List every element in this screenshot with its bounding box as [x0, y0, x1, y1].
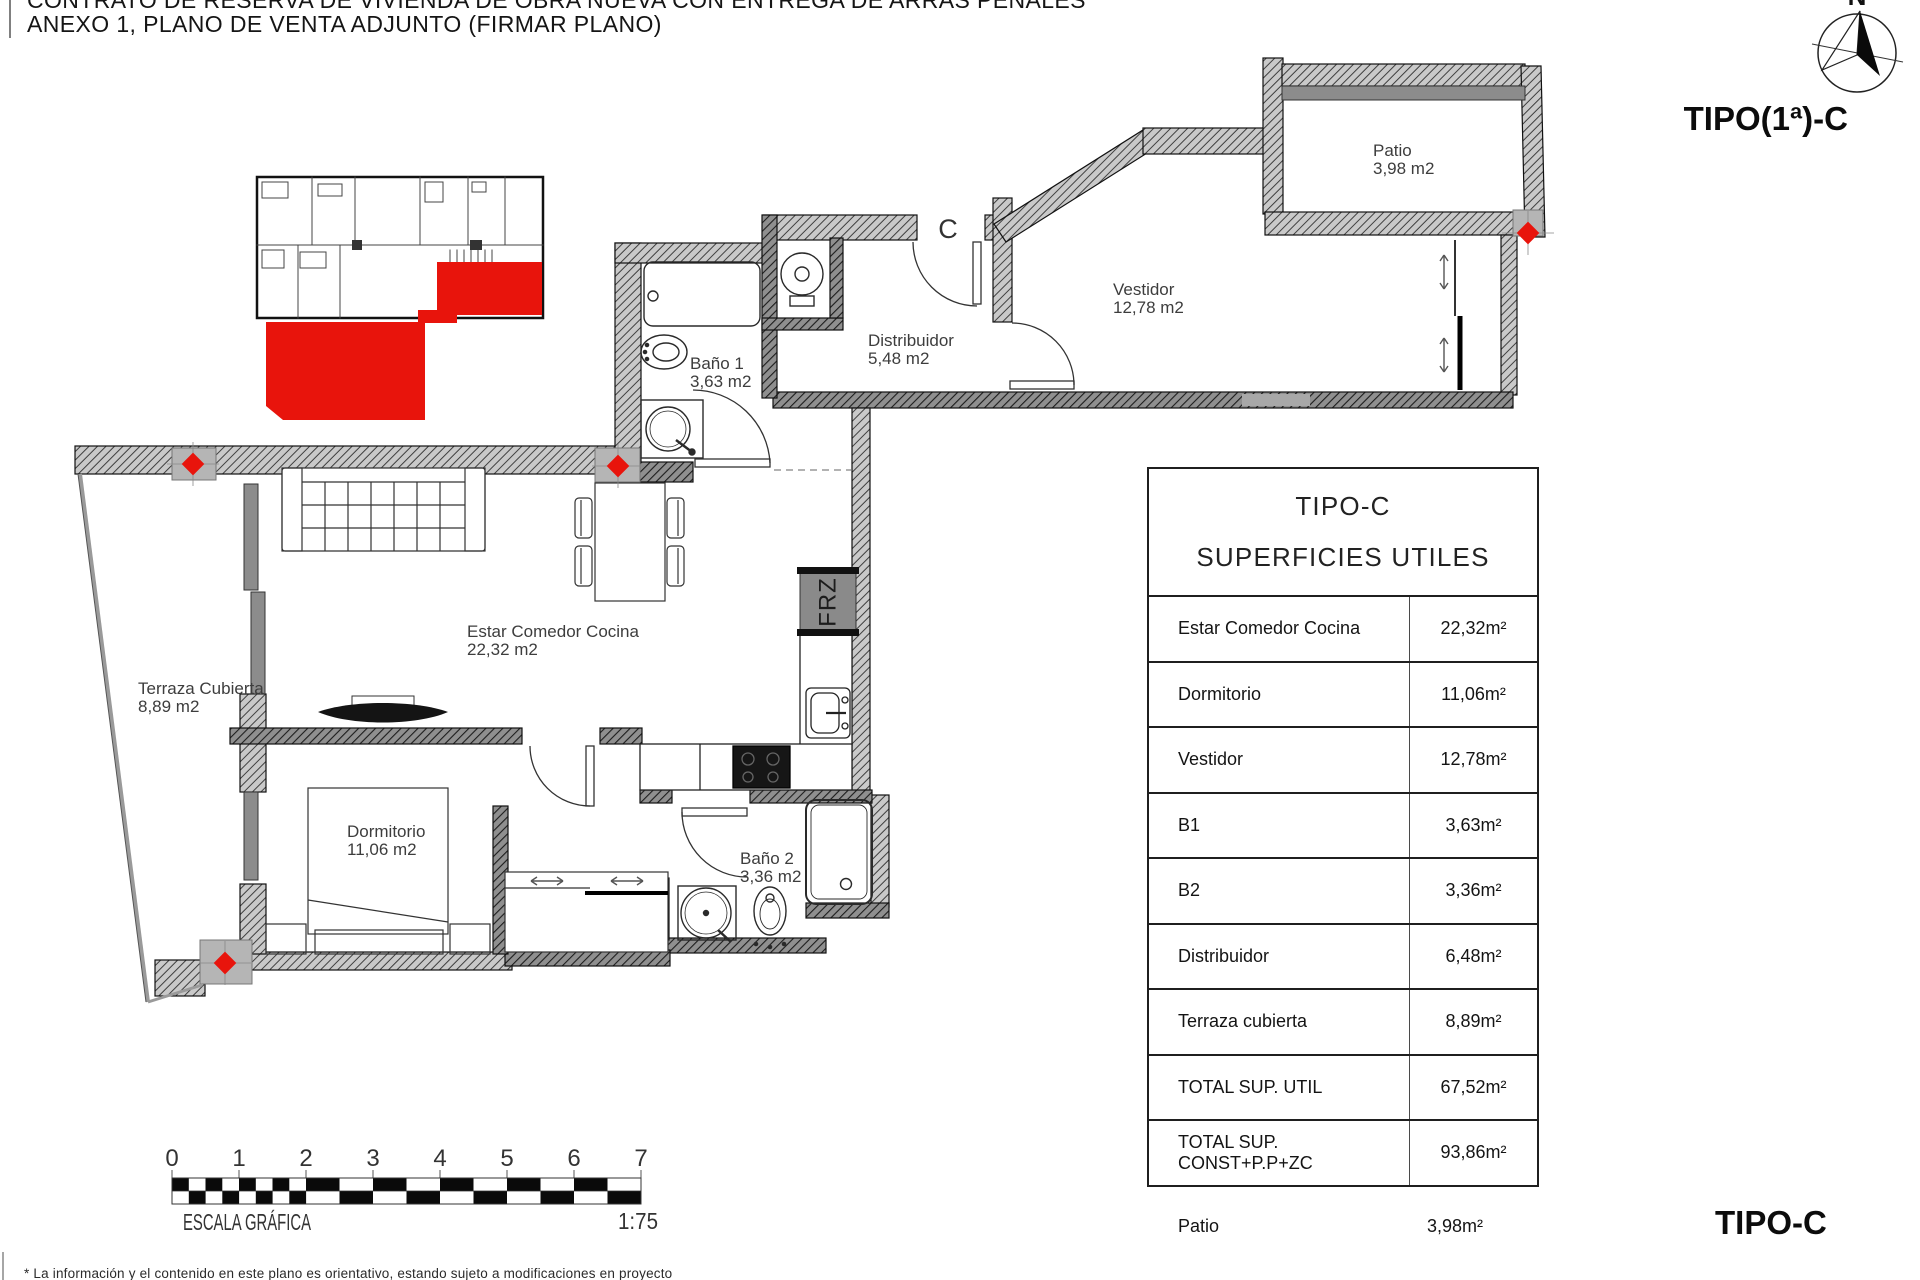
table-row: TOTAL SUP. CONST+P.P+ZC 93,86m² — [1149, 1119, 1537, 1185]
sofa — [282, 468, 485, 551]
room-area-bano2: 3,36 m2 — [740, 867, 801, 886]
compass-north-label: N — [1848, 0, 1867, 11]
compass-icon: N — [1812, 0, 1903, 92]
scale-ticks: 0 1 2 3 4 5 6 7 — [165, 1145, 647, 1172]
svg-text:3: 3 — [366, 1145, 379, 1172]
table-row: TOTAL SUP. UTIL 67,52m² — [1149, 1054, 1537, 1120]
svg-text:7: 7 — [634, 1145, 647, 1172]
table-row: Terraza cubierta 8,89m² — [1149, 988, 1537, 1054]
table-row: B2 3,36m² — [1149, 857, 1537, 923]
washing-machine — [781, 253, 823, 306]
scale-bar: 0 1 2 3 4 5 6 7 — [165, 1145, 658, 1235]
room-area-estar: 22,32 m2 — [467, 640, 538, 659]
type-label-top: TIPO(1ª)-C — [1648, 100, 1848, 138]
room-area-vestidor: 12,78 m2 — [1113, 298, 1184, 317]
terrace-railing — [78, 474, 202, 1002]
dining-table — [575, 483, 684, 601]
svg-text:2: 2 — [299, 1145, 312, 1172]
room-label-terraza: Terraza Cubierta — [138, 679, 264, 698]
table-title: TIPO-C — [1295, 491, 1390, 522]
entrance-door-label: C — [938, 214, 958, 244]
room-area-patio: 3,98 m2 — [1373, 159, 1434, 178]
table-row: Vestidor 12,78m² — [1149, 726, 1537, 792]
room-label-patio: Patio — [1373, 141, 1412, 160]
fridge-label: FRZ — [815, 577, 842, 627]
fridge: FRZ — [797, 567, 859, 636]
wardrobe-vestidor — [1440, 240, 1460, 390]
surfaces-table-header: TIPO-C SUPERFICIES UTILES — [1149, 469, 1537, 595]
scale-ratio: 1:75 — [618, 1208, 658, 1234]
room-label-dormitorio: Dormitorio — [347, 822, 425, 841]
table-row: Estar Comedor Cocina 22,32m² — [1149, 595, 1537, 661]
bed — [266, 788, 490, 954]
plan-sheet: FRZ — [0, 0, 1920, 1280]
table-row: Distribuidor 6,48m² — [1149, 923, 1537, 989]
room-label-vestidor: Vestidor — [1113, 280, 1175, 299]
room-area-terraza: 8,89 m2 — [138, 697, 199, 716]
wardrobe-hall — [505, 872, 668, 952]
floorplan-drawing: FRZ — [0, 0, 1920, 1280]
key-plan — [257, 177, 543, 420]
tv-console — [318, 696, 448, 723]
contract-title-line2: ANEXO 1, PLANO DE VENTA ADJUNTO (FIRMAR … — [27, 11, 662, 38]
kitchen-fixtures — [640, 631, 852, 790]
type-label-bottom: TIPO-C — [1715, 1204, 1827, 1242]
table-row: B1 3,63m² — [1149, 792, 1537, 858]
svg-text:4: 4 — [433, 1145, 446, 1172]
room-label-bano1: Baño 1 — [690, 354, 744, 373]
room-area-dormitorio: 11,06 m2 — [347, 840, 417, 859]
room-area-bano1: 3,63 m2 — [690, 372, 751, 391]
svg-text:6: 6 — [567, 1145, 580, 1172]
table-subtitle: SUPERFICIES UTILES — [1196, 542, 1489, 573]
room-label-distribuidor: Distribuidor — [868, 331, 954, 350]
svg-text:5: 5 — [500, 1145, 513, 1172]
disclaimer-footnote: * La información y el contenido en este … — [24, 1266, 672, 1280]
table-footer-row-patio: Patio 3,98m² — [1147, 1216, 1535, 1237]
room-area-distribuidor: 5,48 m2 — [868, 349, 929, 368]
svg-text:0: 0 — [165, 1145, 178, 1172]
room-label-estar: Estar Comedor Cocina — [467, 622, 640, 641]
scale-caption: ESCALA GRÁFICA — [183, 1209, 311, 1235]
table-row: Dormitorio 11,06m² — [1149, 661, 1537, 727]
svg-text:1: 1 — [232, 1145, 245, 1172]
surfaces-table: TIPO-C SUPERFICIES UTILES Estar Comedor … — [1147, 467, 1539, 1187]
room-label-bano2: Baño 2 — [740, 849, 794, 868]
